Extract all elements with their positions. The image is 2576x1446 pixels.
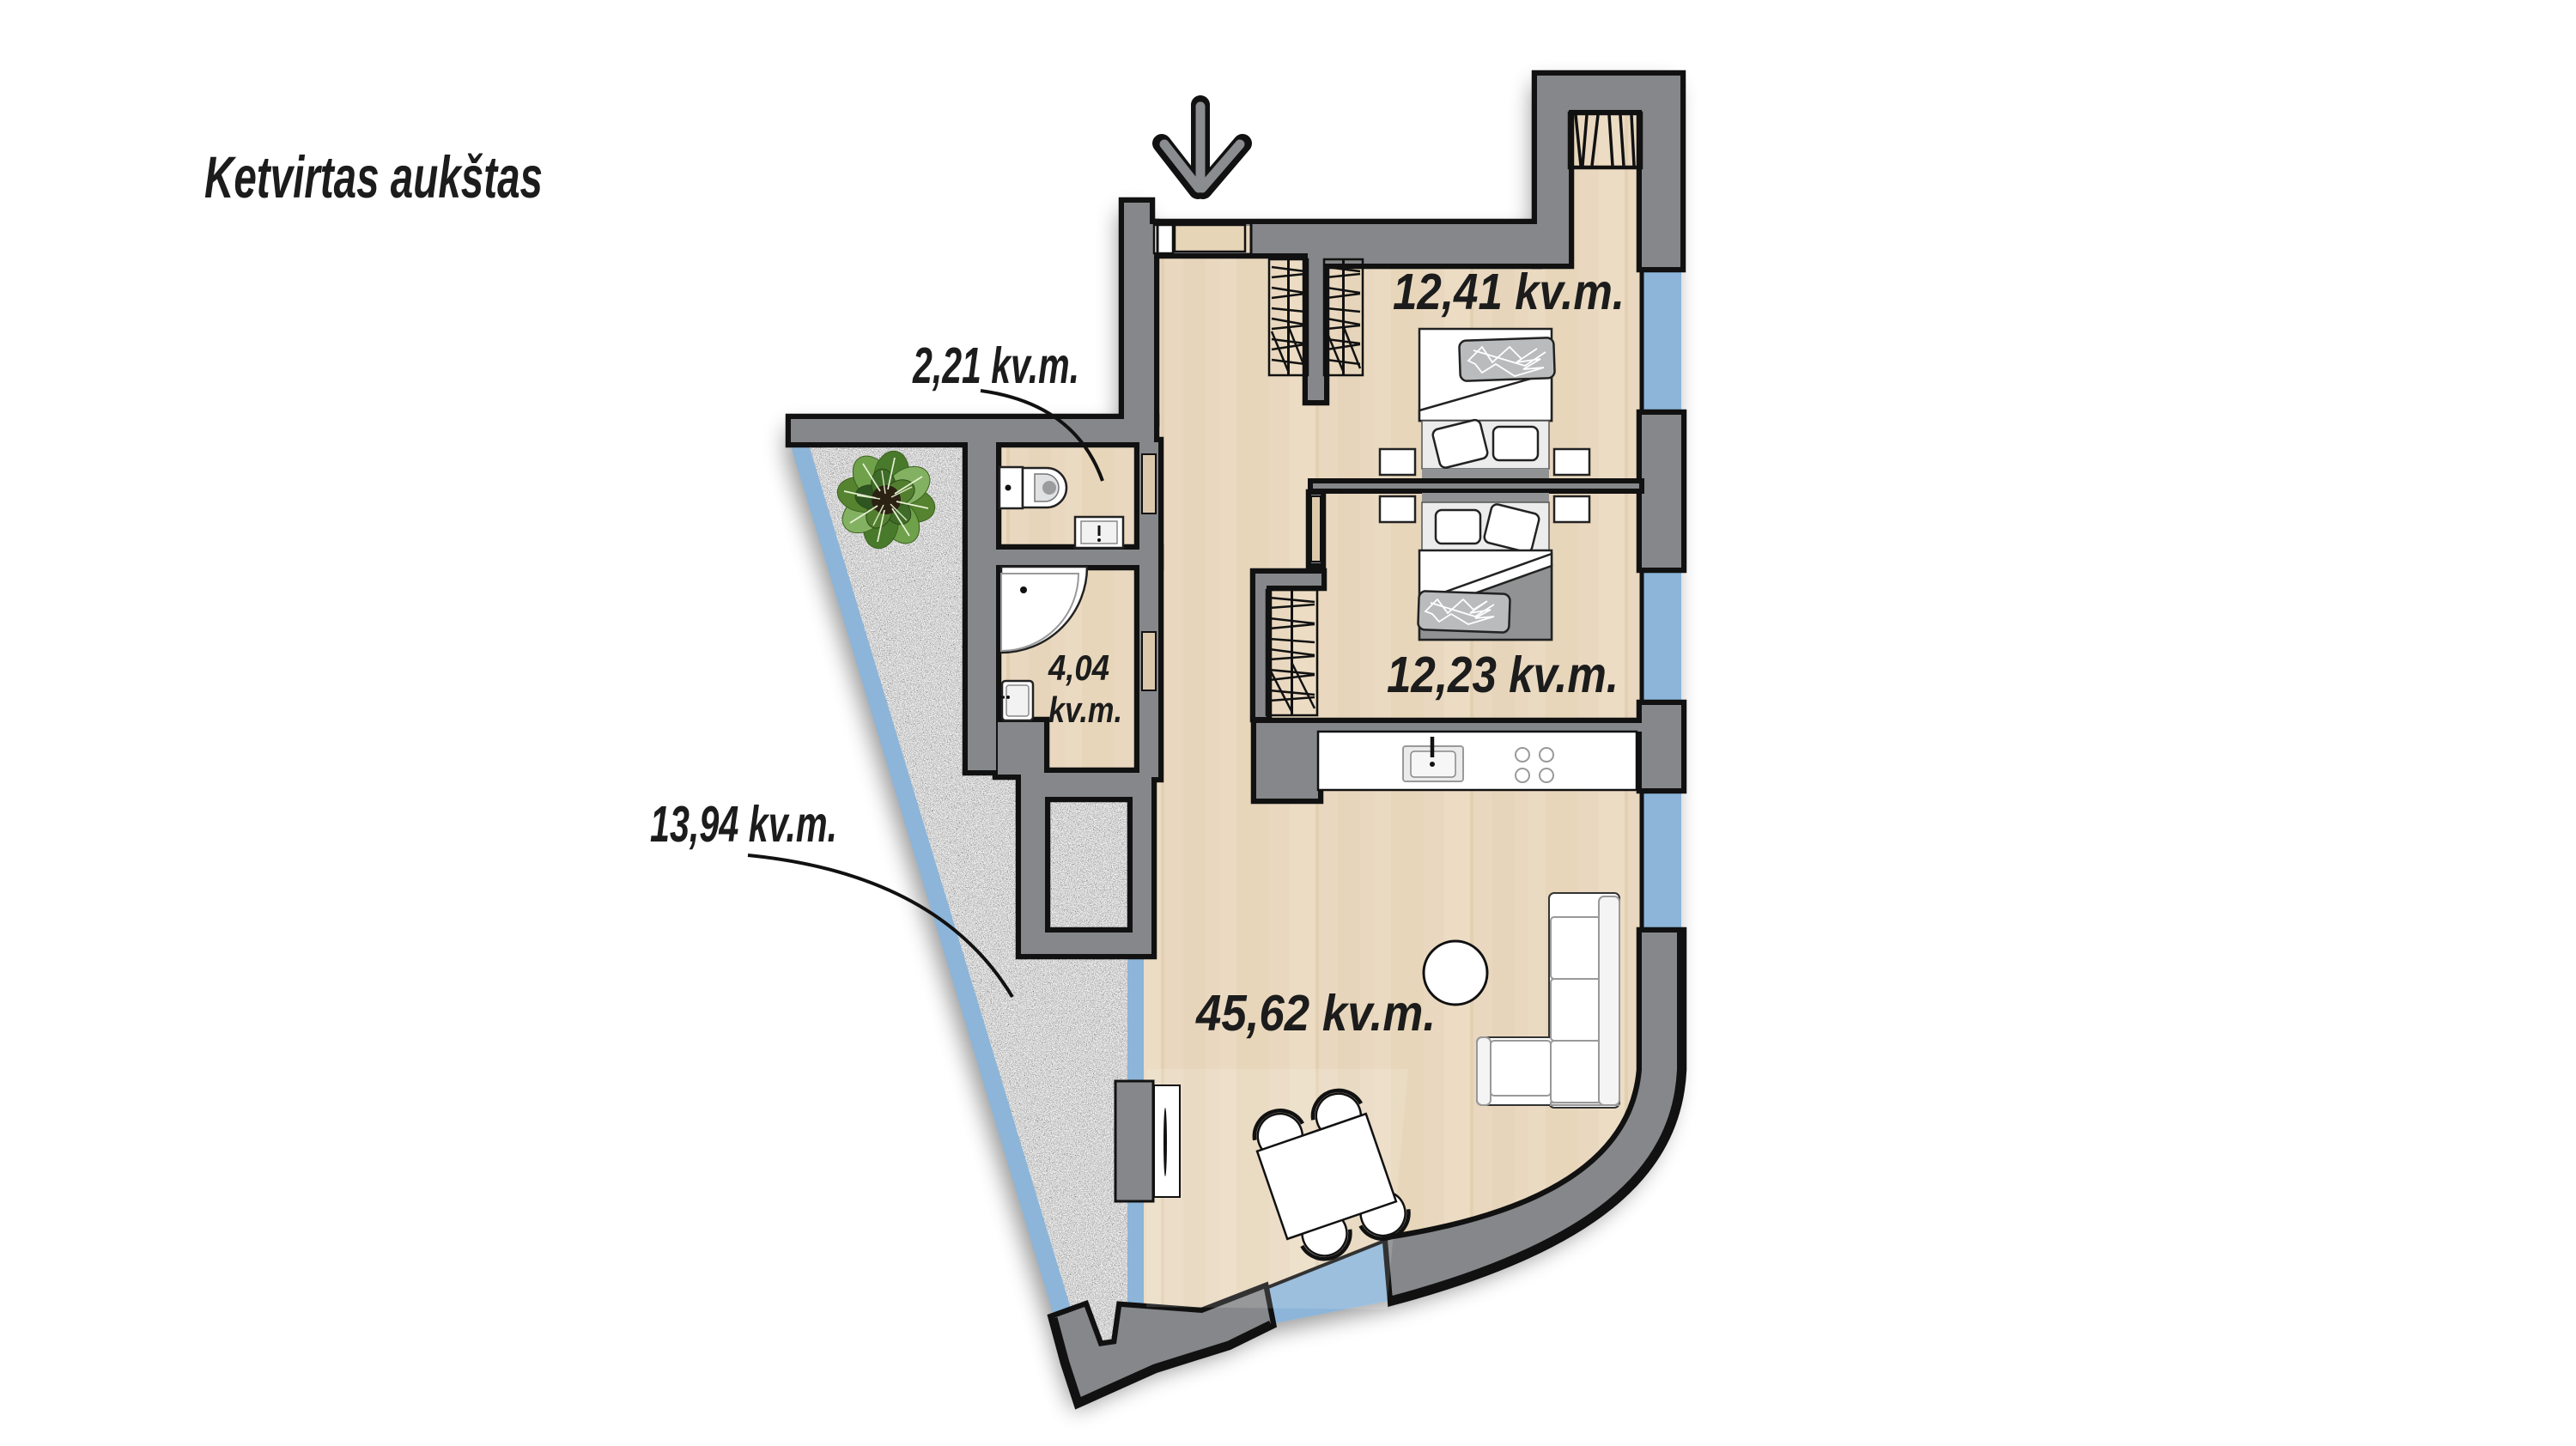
svg-text:kv.m.: kv.m. <box>1048 690 1122 730</box>
svg-text:13,94 kv.m.: 13,94 kv.m. <box>650 796 837 853</box>
svg-text:2,21 kv.m.: 2,21 kv.m. <box>912 337 1079 394</box>
svg-text:Ketvirtas aukštas: Ketvirtas aukštas <box>204 144 543 210</box>
svg-text:4,04: 4,04 <box>1048 647 1109 688</box>
svg-text:12,23 kv.m.: 12,23 kv.m. <box>1387 647 1619 703</box>
svg-text:12,41 kv.m.: 12,41 kv.m. <box>1393 264 1625 320</box>
svg-text:45,62 kv.m.: 45,62 kv.m. <box>1195 985 1436 1042</box>
